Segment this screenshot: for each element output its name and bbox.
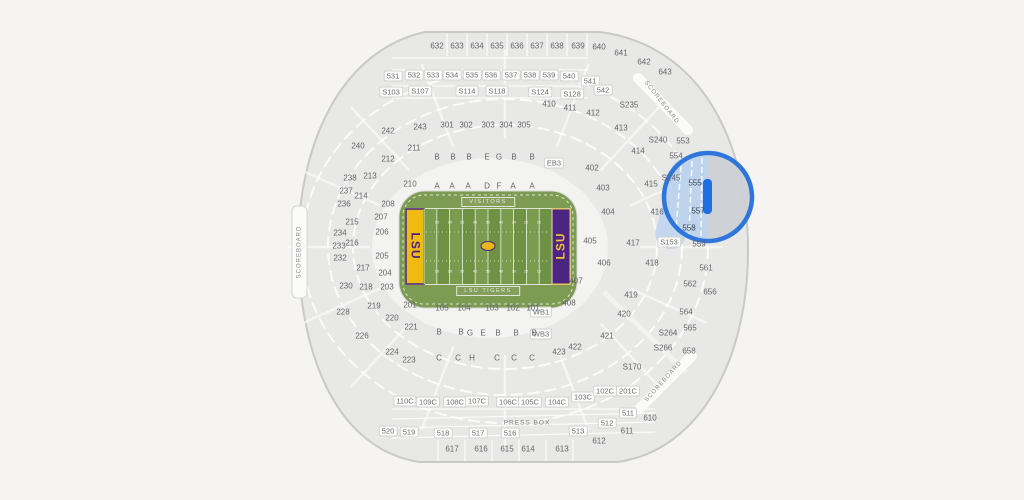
section-201[interactable]: 201 — [403, 301, 416, 310]
stadium-seating-map: 6326336346356366376386396406416426435315… — [0, 0, 1024, 500]
section-404[interactable]: 404 — [601, 208, 614, 217]
section-102[interactable]: 102 — [506, 304, 519, 313]
section-106c[interactable]: 106C — [496, 397, 520, 408]
section-220[interactable]: 220 — [385, 314, 398, 323]
section-210[interactable]: 210 — [403, 180, 416, 189]
section-637[interactable]: 637 — [530, 42, 543, 51]
yard-number: 40 — [473, 267, 477, 276]
endzone-right-text: LSU — [557, 233, 566, 260]
yard-number: 10 — [435, 218, 439, 227]
section-b[interactable]: B — [495, 329, 500, 338]
section-s266[interactable]: S266 — [654, 344, 673, 353]
section-103[interactable]: 103 — [485, 304, 498, 313]
section-c[interactable]: C — [455, 354, 461, 363]
yard-number: 10 — [435, 267, 439, 276]
section-105[interactable]: 105 — [435, 304, 448, 313]
section-214[interactable]: 214 — [354, 192, 367, 201]
section-520[interactable]: 520 — [379, 426, 398, 437]
section-242[interactable]: 242 — [381, 127, 394, 136]
section-557[interactable]: 557 — [691, 207, 704, 216]
press-box-label: PRESS BOX — [504, 419, 551, 428]
section-103c[interactable]: 103C — [571, 392, 595, 403]
section-561[interactable]: 561 — [699, 264, 712, 273]
section-206[interactable]: 206 — [375, 228, 388, 237]
scoreboard-southeast-label: SCOREBOARD — [643, 359, 685, 404]
yard-number: 30 — [512, 218, 516, 227]
section-211[interactable]: 211 — [408, 144, 421, 153]
section-564[interactable]: 564 — [679, 308, 692, 317]
yard-number: 50 — [486, 267, 490, 276]
section-s170[interactable]: S170 — [623, 363, 642, 372]
section-s153[interactable]: S153 — [657, 237, 681, 248]
section-240[interactable]: 240 — [351, 142, 364, 151]
section-c[interactable]: C — [494, 354, 500, 363]
section-405[interactable]: 405 — [583, 237, 596, 246]
section-403[interactable]: 403 — [596, 184, 609, 193]
section-641[interactable]: 641 — [614, 49, 627, 58]
section-b[interactable]: B — [466, 153, 471, 162]
section-233[interactable]: 233 — [332, 242, 345, 251]
section-243[interactable]: 243 — [413, 123, 426, 132]
section-420[interactable]: 420 — [617, 310, 630, 319]
section-535[interactable]: 535 — [463, 70, 482, 81]
section-553[interactable]: 553 — [676, 137, 689, 146]
section-c[interactable]: C — [529, 354, 535, 363]
section-421[interactable]: 421 — [600, 332, 613, 341]
section-416[interactable]: 416 — [650, 208, 663, 217]
section-643[interactable]: 643 — [658, 68, 671, 77]
section-s114[interactable]: S114 — [456, 86, 479, 97]
visitors-bench-label: VISITORS — [461, 197, 515, 207]
section-633[interactable]: 633 — [450, 42, 463, 51]
section-230[interactable]: 230 — [339, 282, 352, 291]
section-531[interactable]: 531 — [384, 71, 403, 82]
section-517[interactable]: 517 — [469, 428, 488, 439]
section-204[interactable]: 204 — [378, 269, 391, 278]
yard-number: 40 — [499, 218, 503, 227]
section-105c[interactable]: 105C — [518, 397, 542, 408]
section-516[interactable]: 516 — [501, 428, 520, 439]
section-238[interactable]: 238 — [343, 174, 356, 183]
section-237[interactable]: 237 — [339, 187, 352, 196]
section-635[interactable]: 635 — [490, 42, 503, 51]
section-201c[interactable]: 201C — [616, 386, 640, 397]
section-b[interactable]: B — [513, 329, 518, 338]
section-e[interactable]: E — [484, 153, 489, 162]
section-a[interactable]: A — [449, 182, 454, 191]
section-413[interactable]: 413 — [614, 124, 627, 133]
section-559[interactable]: 559 — [692, 240, 705, 249]
section-102c[interactable]: 102C — [593, 386, 617, 397]
section-656[interactable]: 656 — [703, 288, 716, 297]
section-eb3[interactable]: EB3 — [544, 158, 564, 169]
section-423[interactable]: 423 — [552, 348, 565, 357]
section-b[interactable]: B — [458, 328, 463, 337]
section-226[interactable]: 226 — [355, 332, 368, 341]
yard-number: 30 — [460, 218, 464, 227]
yard-number: 20 — [524, 267, 528, 276]
section-b[interactable]: B — [531, 329, 536, 338]
yard-number: 50 — [486, 218, 490, 227]
section-537[interactable]: 537 — [502, 70, 521, 81]
section-538[interactable]: 538 — [521, 70, 540, 81]
section-236[interactable]: 236 — [337, 200, 350, 209]
section-g[interactable]: G — [467, 329, 473, 338]
section-558[interactable]: 558 — [682, 224, 695, 233]
section-414[interactable]: 414 — [631, 147, 644, 156]
section-634[interactable]: 634 — [470, 42, 483, 51]
section-418[interactable]: 418 — [645, 259, 658, 268]
section-562[interactable]: 562 — [683, 280, 696, 289]
section-218[interactable]: 218 — [359, 283, 372, 292]
section-519[interactable]: 519 — [400, 427, 419, 438]
section-s128[interactable]: S128 — [560, 89, 584, 100]
scoreboard-northeast-label: SCOREBOARD — [641, 79, 681, 126]
section-415[interactable]: 415 — [644, 180, 657, 189]
section-539[interactable]: 539 — [540, 70, 559, 81]
section-411[interactable]: 411 — [564, 104, 577, 113]
section-658[interactable]: 658 — [682, 347, 695, 356]
section-422[interactable]: 422 — [568, 343, 581, 352]
section-402[interactable]: 402 — [585, 164, 598, 173]
section-534[interactable]: 534 — [443, 70, 462, 81]
section-s124[interactable]: S124 — [528, 87, 552, 98]
section-232[interactable]: 232 — [333, 254, 346, 263]
section-c[interactable]: C — [511, 354, 517, 363]
section-419[interactable]: 419 — [624, 291, 637, 300]
section-107c[interactable]: 107C — [465, 396, 489, 407]
section-110c[interactable]: 110C — [393, 396, 416, 407]
section-s264[interactable]: S264 — [659, 329, 678, 338]
section-513[interactable]: 513 — [569, 426, 588, 437]
section-224[interactable]: 224 — [385, 348, 398, 357]
section-s103[interactable]: S103 — [379, 87, 403, 98]
section-408[interactable]: 408 — [562, 299, 575, 308]
yard-number: 40 — [473, 218, 477, 227]
section-303[interactable]: 303 — [481, 121, 494, 130]
section-g[interactable]: G — [496, 153, 502, 162]
section-407[interactable]: 407 — [569, 277, 582, 286]
yard-number: 20 — [448, 218, 452, 227]
section-c[interactable]: C — [436, 354, 442, 363]
section-617[interactable]: 617 — [445, 445, 458, 454]
yard-number: 40 — [499, 267, 503, 276]
section-536[interactable]: 536 — [482, 70, 501, 81]
section-639[interactable]: 639 — [571, 42, 584, 51]
section-a[interactable]: A — [434, 182, 439, 191]
section-406[interactable]: 406 — [597, 259, 610, 268]
section-216[interactable]: 216 — [345, 239, 358, 248]
section-b[interactable]: B — [450, 153, 455, 162]
section-b[interactable]: B — [434, 153, 439, 162]
section-613[interactable]: 613 — [555, 445, 568, 454]
section-412[interactable]: 412 — [586, 109, 599, 118]
section-219[interactable]: 219 — [367, 302, 380, 311]
section-223[interactable]: 223 — [402, 356, 415, 365]
section-512[interactable]: 512 — [598, 418, 617, 429]
section-h[interactable]: H — [469, 354, 475, 363]
endzone-left-text: LSU — [411, 233, 420, 260]
yard-number: 30 — [512, 267, 516, 276]
section-s240[interactable]: S240 — [649, 136, 668, 145]
section-s235[interactable]: S235 — [620, 101, 639, 110]
section-104[interactable]: 104 — [457, 304, 470, 313]
yard-number: 20 — [524, 218, 528, 227]
section-615[interactable]: 615 — [500, 445, 513, 454]
section-213[interactable]: 213 — [363, 172, 376, 181]
section-109c[interactable]: 109C — [416, 397, 440, 408]
section-302[interactable]: 302 — [459, 121, 472, 130]
section-labels: 6326336346356366376386396406416426435315… — [0, 0, 1024, 500]
section-632[interactable]: 632 — [430, 42, 443, 51]
scoreboard-west-label: SCOREBOARD — [296, 226, 305, 279]
yard-number: 30 — [460, 267, 464, 276]
home-bench-label: LSU TIGERS — [456, 286, 520, 296]
section-554[interactable]: 554 — [669, 152, 682, 161]
section-b[interactable]: B — [511, 153, 516, 162]
yard-number: 10 — [537, 267, 541, 276]
section-203[interactable]: 203 — [380, 283, 393, 292]
section-410[interactable]: 410 — [542, 100, 555, 109]
yard-number: 20 — [448, 267, 452, 276]
section-s118[interactable]: S118 — [486, 86, 509, 97]
section-611[interactable]: 611 — [621, 427, 634, 436]
section-540[interactable]: 540 — [560, 71, 579, 82]
section-612[interactable]: 612 — [592, 437, 605, 446]
section-304[interactable]: 304 — [499, 121, 512, 130]
section-511[interactable]: 511 — [619, 408, 637, 419]
section-555[interactable]: 555 — [688, 179, 701, 188]
section-638[interactable]: 638 — [550, 42, 563, 51]
yard-number: 10 — [537, 218, 541, 227]
section-234[interactable]: 234 — [333, 229, 346, 238]
section-d[interactable]: D — [484, 182, 490, 191]
section-640[interactable]: 640 — [592, 43, 605, 52]
section-565[interactable]: 565 — [683, 324, 696, 333]
section-a[interactable]: A — [465, 182, 470, 191]
section-228[interactable]: 228 — [336, 308, 349, 317]
section-208[interactable]: 208 — [381, 200, 394, 209]
section-533[interactable]: 533 — [424, 70, 443, 81]
section-207[interactable]: 207 — [374, 213, 387, 222]
section-614[interactable]: 614 — [521, 445, 534, 454]
section-104c[interactable]: 104C — [545, 397, 569, 408]
section-108c[interactable]: 108C — [443, 397, 467, 408]
section-205[interactable]: 205 — [375, 252, 388, 261]
section-518[interactable]: 518 — [434, 428, 453, 439]
section-542[interactable]: 542 — [594, 85, 613, 96]
section-a[interactable]: A — [510, 182, 515, 191]
section-b[interactable]: B — [529, 153, 534, 162]
section-305[interactable]: 305 — [517, 121, 530, 130]
section-221[interactable]: 221 — [404, 323, 417, 332]
section-b[interactable]: B — [436, 328, 441, 337]
section-a[interactable]: A — [529, 182, 534, 191]
section-215[interactable]: 215 — [345, 218, 358, 227]
section-636[interactable]: 636 — [510, 42, 523, 51]
section-101[interactable]: 101 — [526, 304, 539, 313]
section-301[interactable]: 301 — [440, 121, 453, 130]
section-f[interactable]: F — [497, 182, 502, 191]
section-642[interactable]: 642 — [637, 58, 650, 67]
section-212[interactable]: 212 — [381, 155, 394, 164]
section-s245[interactable]: S245 — [662, 174, 681, 183]
section-532[interactable]: 532 — [405, 70, 424, 81]
section-s107[interactable]: S107 — [408, 86, 432, 97]
section-417[interactable]: 417 — [626, 239, 639, 248]
section-610[interactable]: 610 — [643, 414, 656, 423]
section-217[interactable]: 217 — [356, 264, 369, 273]
section-e[interactable]: E — [480, 329, 485, 338]
section-616[interactable]: 616 — [474, 445, 487, 454]
